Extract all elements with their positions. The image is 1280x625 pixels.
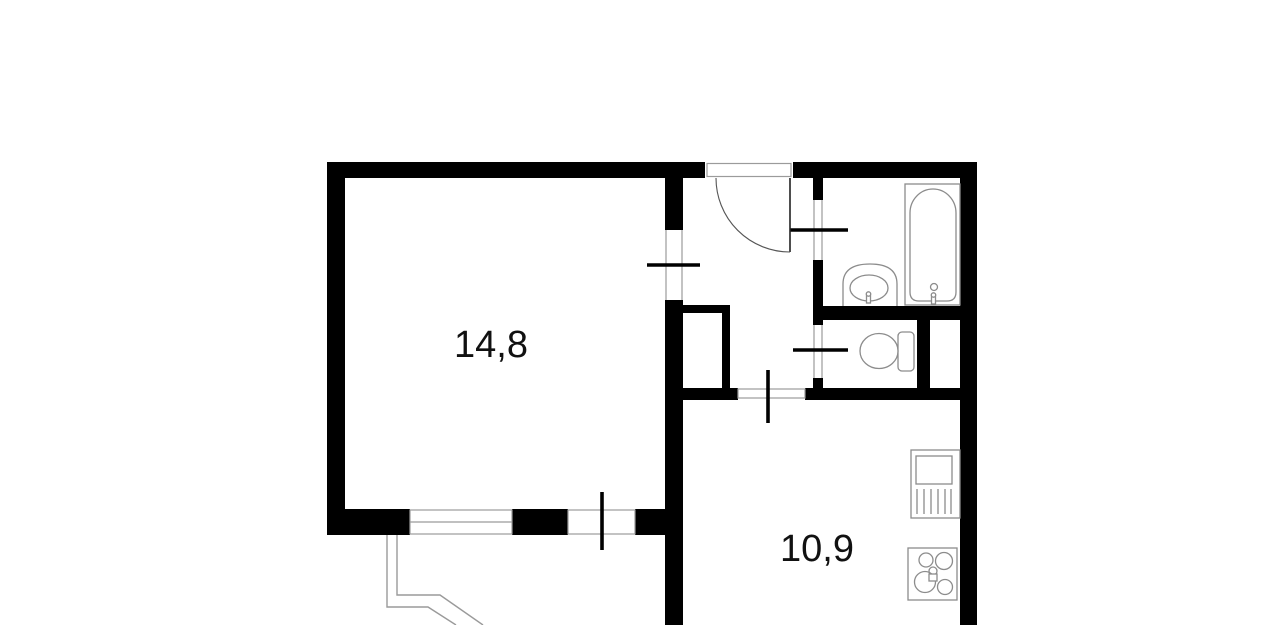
toilet <box>860 332 914 371</box>
closet-wall-top <box>683 305 730 313</box>
floor-plan-image: 14,8 10,9 <box>0 0 1280 625</box>
wall-segment <box>813 378 823 400</box>
wall-segment <box>512 509 568 535</box>
kitchen-door-threshold <box>738 389 805 398</box>
wall-segment <box>917 320 930 400</box>
wall-segment <box>960 162 977 625</box>
wall-segment <box>813 178 823 200</box>
floor-plan-canvas: 14,8 10,9 <box>0 0 1280 625</box>
wall-segment <box>665 162 683 230</box>
living-room-area-label: 14,8 <box>454 324 528 366</box>
wall-segment <box>327 509 410 535</box>
bathtub-faucet-knob <box>931 293 935 297</box>
toilet-tank <box>898 332 914 371</box>
wall-segment <box>327 162 705 178</box>
basin-faucet-knob <box>866 292 870 296</box>
entrance-door-frame <box>707 164 791 177</box>
wall-segment <box>793 162 977 178</box>
toilet-bowl <box>860 334 898 369</box>
wall-segment <box>683 388 738 400</box>
kitchen-area-label: 10,9 <box>780 528 854 570</box>
stove-detail <box>929 574 937 581</box>
wall-segment <box>805 388 960 400</box>
wall-segment <box>665 300 683 625</box>
wall-segment <box>813 306 977 320</box>
closet-wall-right <box>722 313 730 400</box>
wall-segment <box>327 162 345 535</box>
